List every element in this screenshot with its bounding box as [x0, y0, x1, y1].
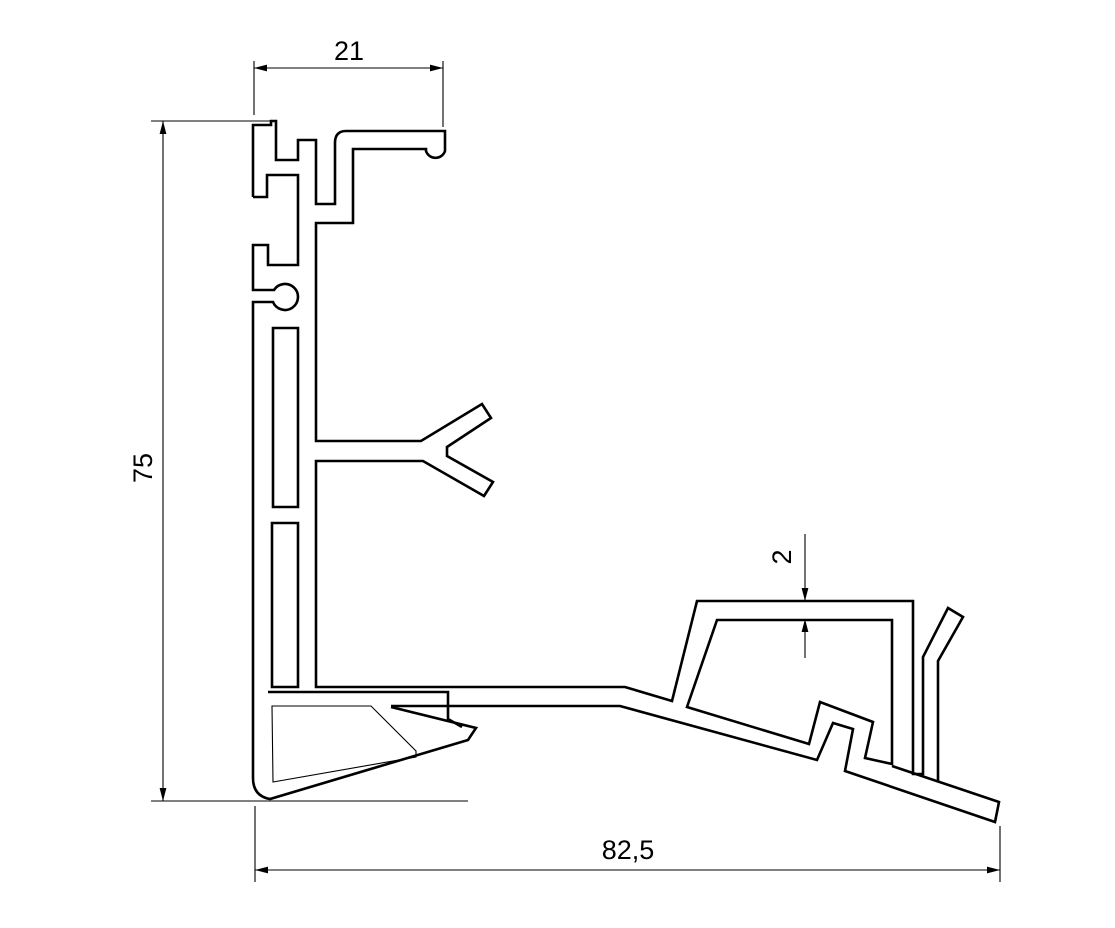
profile-web-and-flange	[391, 706, 999, 822]
profile-chamber-inner	[687, 620, 892, 764]
dimension-left-arrow-top	[160, 121, 167, 134]
dimension-left-arrow-bottom	[160, 788, 167, 801]
dimension-top-extension-lines	[254, 61, 443, 127]
dimension-bottom-width: 82,5	[255, 806, 1000, 882]
profile-foot-outline	[253, 303, 476, 799]
profile-outline	[253, 121, 999, 822]
dimension-left-label: 75	[128, 453, 158, 483]
profile-left-wall-notches	[253, 175, 298, 310]
dimension-top-arrow-right	[430, 65, 443, 72]
dimension-wall-label: 2	[767, 549, 797, 564]
dimension-bottom-label: 82,5	[602, 835, 655, 865]
dimension-top-width: 21	[254, 36, 443, 127]
dimension-top-arrow-left	[254, 65, 267, 72]
dimension-top-label: 21	[334, 36, 364, 66]
profile-slot-lower	[272, 523, 298, 687]
profile-foot-chamber	[268, 692, 462, 727]
drawing-canvas: 21 75 2 82,5	[0, 0, 1115, 928]
profile-slot-upper	[273, 328, 298, 507]
profile-drawing: 21 75 2 82,5	[0, 0, 1115, 928]
dimension-wall-thickness: 2	[767, 534, 808, 658]
profile-main-body	[253, 121, 963, 782]
foot-insert-wedge	[272, 706, 416, 782]
dimension-bottom-arrow-right	[987, 867, 1000, 874]
dimension-bottom-arrow-left	[255, 867, 268, 874]
dimension-wall-arrow-down	[802, 588, 809, 601]
